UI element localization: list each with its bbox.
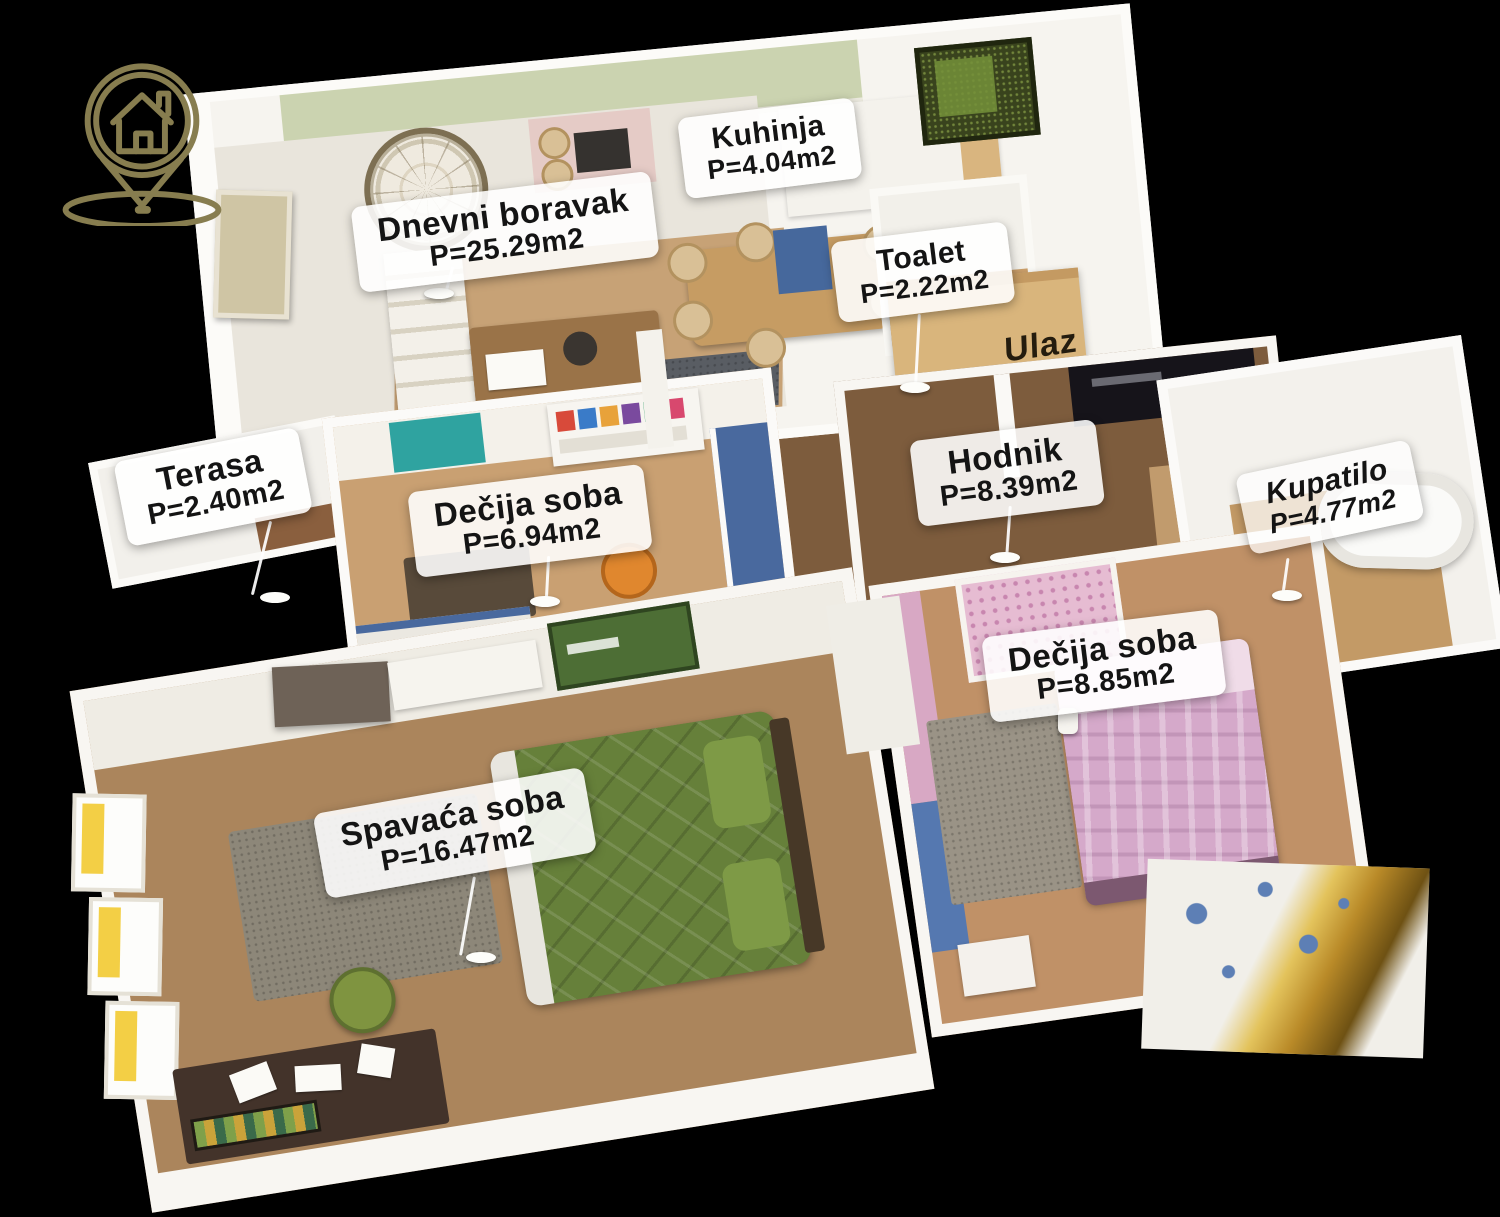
kids-room-2 [868, 522, 1383, 1037]
label-pin-base [990, 552, 1020, 563]
moss-wall-panel [914, 37, 1041, 146]
label-pin-base [530, 596, 560, 607]
nightstand [957, 935, 1036, 997]
label-pin-base [466, 952, 496, 963]
label-pin-base [260, 592, 290, 603]
teal-cabinet [389, 413, 486, 473]
label-pin-base [424, 288, 454, 299]
house-location-pin-icon [46, 46, 238, 226]
bedroom-section [70, 567, 935, 1212]
bedroom-desk [172, 1028, 450, 1164]
window-frame [87, 897, 163, 996]
label-pin-base [1272, 590, 1302, 601]
kitchen-blue-cabinet [773, 225, 833, 294]
window-frame [71, 793, 147, 892]
keyboard-strip [190, 1100, 321, 1152]
marble-gold-corner [1141, 859, 1429, 1059]
label-pin-base [900, 382, 930, 393]
standing-mirror [272, 661, 391, 727]
window-frame [104, 1001, 180, 1100]
floorplan-page: { "logo": { "icon": "house-location-pin-… [0, 0, 1500, 1167]
kids2-rug [926, 703, 1083, 906]
